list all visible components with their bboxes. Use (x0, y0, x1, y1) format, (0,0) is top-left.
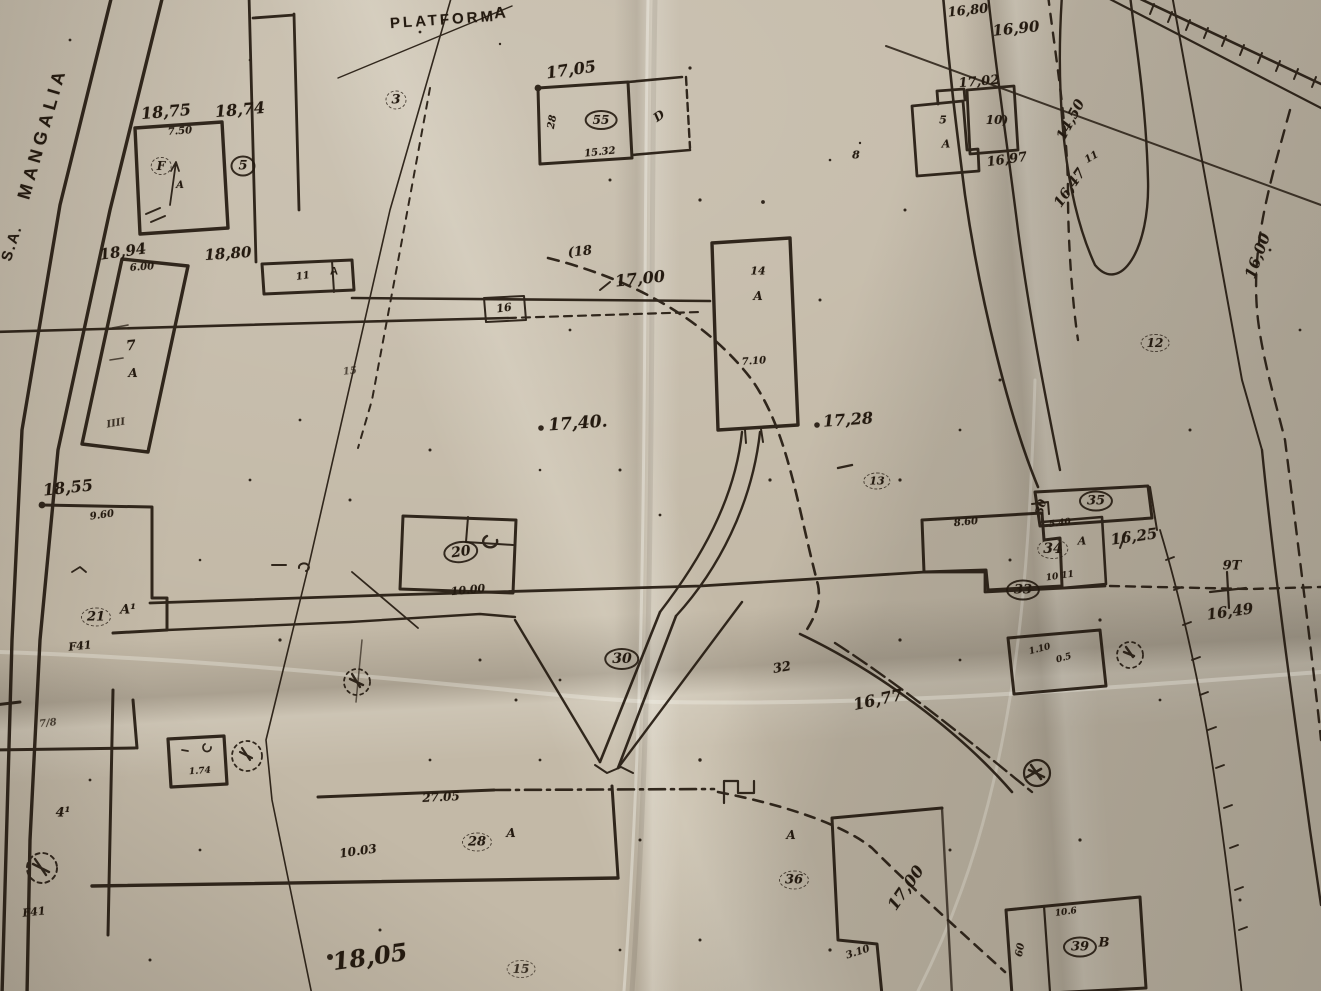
map-label-f41-a: F41 (68, 639, 92, 652)
map-label-dim-960: 9.60 (89, 509, 115, 522)
map-label-box-11: 11 (295, 271, 310, 283)
map-label-elev-1894: 18,94 (99, 241, 148, 262)
map-label-pt-21: 21 (81, 608, 111, 627)
map-label-elev-1705: 17,05 (545, 59, 597, 82)
map-label-bldg-F-a: A (176, 181, 184, 191)
map-label-elev-1677: 16,77 (852, 687, 904, 713)
map-label-pt-55: 55 (585, 110, 618, 130)
map-label-pt-12: 12 (1141, 334, 1170, 352)
map-label-dim-30: 30 (1034, 498, 1049, 516)
photographed-site-plan: S.A.MANGALIAPLATFORMA318,757.50FA18,7451… (0, 0, 1321, 991)
map-label-pt-15a: 15 (343, 366, 358, 377)
map-label-elev-1728: 17,28 (822, 410, 873, 429)
map-label-elev-1697: 16,97 (986, 151, 1028, 170)
map-label-street-prefix: S.A. (0, 223, 25, 263)
map-label-elev-1680: 16,80 (947, 2, 989, 19)
map-label-elev-1874: 18,74 (214, 100, 265, 120)
map-label-elev-1647: 16,47 (1052, 166, 1089, 210)
map-label-pt-15b: 15 (507, 960, 536, 978)
map-label-bldg-14-a: A (753, 290, 762, 302)
map-label-dim-1000: 10.00 (450, 583, 485, 598)
map-label-bldg-7-a: A (128, 367, 137, 379)
map-label-elev-1880: 18,80 (204, 245, 252, 263)
map-label-elev-1450: 14,50 (1055, 97, 1088, 142)
map-label-dim-110: 1.10 (1028, 643, 1052, 657)
map-label-pt-20: 20 (442, 539, 480, 566)
map-label-dim-2705: 27.05 (422, 790, 460, 804)
map-label-ctr-18: (18 (567, 244, 592, 259)
map-label-dim-750: 7.50 (168, 126, 193, 138)
map-label-pt-36: 36 (779, 871, 809, 890)
map-label-elev-1740: 17,40. (548, 413, 608, 434)
map-label-dim-310: 3.10 (845, 944, 871, 961)
map-label-ctr-1600: 16,00 (1243, 231, 1273, 280)
map-label-dim-860: 8.60 (953, 517, 978, 529)
map-label-dim-106: 10.6 (1055, 907, 1078, 919)
map-label-dim-174: 1.74 (189, 767, 211, 778)
map-label-road-16: 16 (496, 301, 513, 314)
map-label-pt-30: 30 (604, 648, 639, 670)
map-label-pt-21-a1: A¹ (120, 604, 136, 617)
map-label-elev-1875: 18,75 (140, 102, 191, 122)
map-label-dim-1011: 10 11 (1045, 571, 1074, 584)
map-label-dim-540: 5.40 (1049, 518, 1072, 530)
map-label-pt-28: 28 (462, 833, 492, 852)
map-label-pt-33: 33 (1006, 580, 1040, 601)
map-label-bldg-5: 5 (939, 115, 947, 126)
map-label-pt-8: 8 (852, 150, 860, 161)
map-label-dim-60: 60 (1015, 942, 1027, 957)
map-label-bldg-7: 7 (125, 339, 136, 354)
map-label-pt-34: 34 (1037, 539, 1068, 559)
map-label-elev-1805: 18,05 (331, 940, 409, 974)
map-label-platforma-a: A (494, 6, 507, 23)
map-label-dim-1532: 15.32 (584, 146, 616, 159)
map-label-pt-39: 39 (1063, 937, 1097, 958)
map-label-bldg-F: F (151, 157, 172, 175)
map-label-pt-34-a: A (1078, 536, 1087, 547)
map-label-elev-1690: 16,90 (992, 19, 1040, 39)
map-label-bldg-10: 10) (986, 114, 1008, 126)
map-label-elev-1625: 16,25 (1110, 526, 1159, 547)
map-label-elev-1700: 17,00 (614, 268, 666, 289)
map-label-marks-11: 11 (1083, 150, 1100, 166)
map-label-bldg-36-a: A (786, 829, 795, 841)
map-label-pt-39-b: B (1099, 937, 1110, 950)
map-label-bldg-14: 14 (750, 266, 765, 277)
map-label-box-11-a: A (330, 267, 338, 278)
map-label-dim-600: 6.00 (130, 262, 155, 274)
map-label-ctr-1700b: 17,00 (885, 863, 927, 913)
map-label-pt-28-a: A (506, 827, 515, 839)
map-label-elev-1649: 16,49 (1206, 601, 1255, 622)
map-label-pt-5: 5 (230, 156, 255, 177)
map-label-pt-3: 3 (385, 91, 406, 110)
map-label-pt-41: 4¹ (56, 807, 71, 820)
map-label-f41-b: F41 (22, 905, 46, 918)
map-label-dim-78: 7/8 (39, 718, 58, 730)
map-label-bldg-5-a: A (942, 139, 951, 150)
map-label-elev-1702: 17,02 (958, 74, 1000, 90)
map-label-bldg-d: D (651, 108, 666, 124)
map-label-pt-9t: 9T (1223, 560, 1242, 573)
map-label-elev-1855: 18,55 (42, 477, 94, 498)
map-label-hatch-iiii: IIII (106, 417, 126, 430)
map-label-ctr-13: 13 (863, 473, 890, 490)
map-label-pt-35: 35 (1079, 491, 1113, 512)
map-label-dim-1003: 10.03 (339, 842, 378, 859)
map-label-street-mangalia: MANGALIA (14, 65, 69, 202)
map-label-dim-710: 7.10 (742, 356, 767, 368)
map-labels: S.A.MANGALIAPLATFORMA318,757.50FA18,7451… (0, 0, 1321, 991)
map-label-dim-05: 0.5 (1055, 653, 1072, 666)
map-label-dim-28: 28 (547, 114, 559, 129)
map-label-platforma: PLATFORM (389, 9, 496, 31)
map-label-pt-32: 32 (772, 660, 792, 676)
